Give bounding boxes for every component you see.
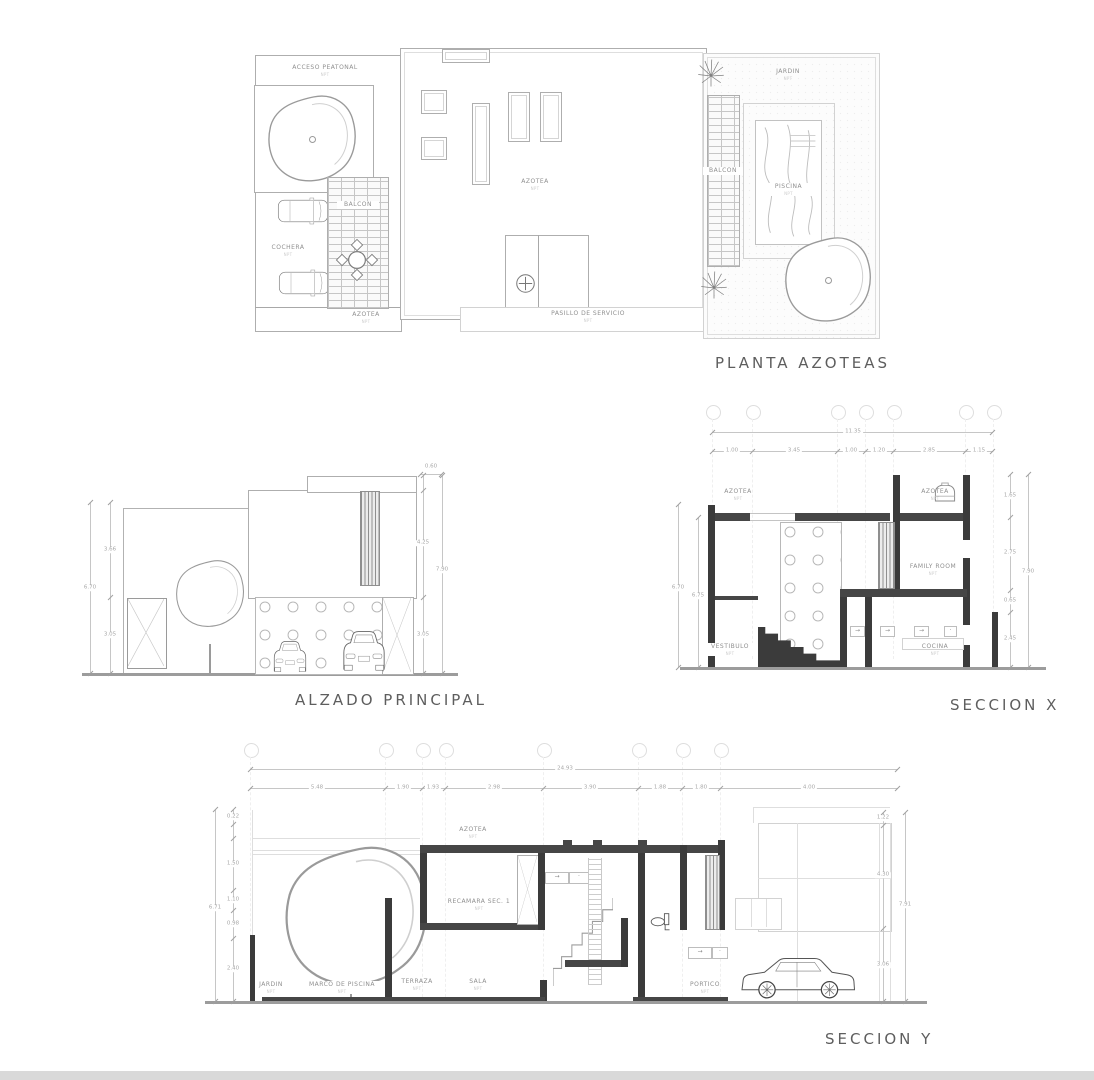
line bbox=[252, 810, 253, 935]
tree-elevation-icon bbox=[172, 540, 248, 648]
skylight bbox=[540, 92, 562, 142]
dining-set-icon bbox=[335, 238, 379, 282]
slab bbox=[795, 513, 890, 521]
dimension-line bbox=[423, 476, 424, 673]
dim-label: 1.93 bbox=[425, 785, 441, 791]
room-label-azotea: AZOTEA NPT bbox=[453, 826, 493, 839]
line bbox=[750, 520, 795, 521]
dim-label: 4.00 bbox=[801, 785, 817, 791]
dim-label: 1.88 bbox=[652, 785, 668, 791]
dim-label: 1.15 bbox=[971, 448, 987, 454]
line bbox=[538, 235, 539, 307]
cross-brace-icon bbox=[518, 856, 537, 922]
car-side-icon bbox=[733, 951, 861, 1001]
room-label-azotea: AZOTEA NPT bbox=[718, 488, 758, 501]
dim-label: 6.70 bbox=[82, 585, 98, 591]
dim-label: 2.45 bbox=[1002, 636, 1018, 642]
dim-label: 7.91 bbox=[897, 902, 913, 908]
skylight bbox=[421, 90, 447, 114]
room-label-text: PASILLO DE SERVICIO bbox=[551, 310, 625, 317]
palm-icon bbox=[699, 270, 729, 300]
shelf-chip: · bbox=[569, 872, 589, 884]
dim-label: 2.85 bbox=[921, 448, 937, 454]
room-label-text: VESTIBULO bbox=[711, 643, 749, 650]
room-label-text: JARDIN bbox=[259, 981, 283, 988]
roof-notch bbox=[442, 49, 490, 63]
grid-bubble-icon bbox=[244, 743, 259, 758]
slab bbox=[420, 845, 723, 853]
door-swing-chip: · bbox=[944, 626, 957, 637]
toilet-icon bbox=[648, 910, 672, 932]
level-note: NPT bbox=[683, 989, 727, 994]
seccion-y-drawing: 24.93 5.48 1.90 1.93 2.98 3.90 1.88 1.80… bbox=[205, 738, 945, 1058]
room-label-marco-piscina: MARCO DE PISCINA NPT bbox=[301, 981, 383, 994]
level-note: NPT bbox=[902, 571, 964, 576]
slab bbox=[715, 596, 758, 600]
dim-label: 6.70 bbox=[670, 585, 686, 591]
slab bbox=[563, 840, 572, 845]
dim-label: 3.05 bbox=[415, 632, 431, 638]
wall bbox=[420, 853, 427, 930]
level-note: NPT bbox=[283, 72, 367, 77]
room-label-piscina: PISCINA NPT bbox=[765, 183, 812, 196]
dim-label: 3.05 bbox=[102, 632, 118, 638]
room-label-azotea-cochera: AZOTEA NPT bbox=[341, 311, 391, 324]
slab bbox=[715, 513, 750, 521]
shelf-chip: · bbox=[712, 947, 728, 959]
dimension-line bbox=[442, 476, 443, 673]
window-gap bbox=[963, 625, 970, 645]
column-line bbox=[879, 823, 880, 1001]
dim-label: 6.75 bbox=[690, 593, 706, 599]
level-note: NPT bbox=[341, 319, 391, 324]
level-note: NPT bbox=[253, 989, 289, 994]
grid-bubble-icon bbox=[632, 743, 647, 758]
skylight bbox=[421, 137, 447, 160]
grid-bubble-icon bbox=[831, 405, 846, 420]
grid-bubble-icon bbox=[959, 405, 974, 420]
grid-bubble-icon bbox=[859, 405, 874, 420]
line bbox=[758, 878, 890, 879]
line bbox=[753, 807, 754, 823]
room-label-acceso: ACCESO PEATONAL NPT bbox=[283, 64, 367, 77]
line bbox=[750, 513, 795, 514]
shelf-chip: → bbox=[545, 872, 569, 884]
grid-bubble-icon bbox=[987, 405, 1002, 420]
level-note: NPT bbox=[302, 989, 382, 994]
dim-label: 0.60 bbox=[423, 464, 439, 470]
floor-slab bbox=[262, 997, 545, 1001]
wall bbox=[538, 853, 545, 930]
ground-line bbox=[205, 1001, 927, 1004]
wall bbox=[992, 612, 998, 669]
alzado-principal-drawing: 6.70 3.66 3.05 0.60 4.25 3.05 7.90 ALZAD… bbox=[80, 458, 480, 718]
dim-label: 1.00 bbox=[724, 448, 740, 454]
line bbox=[766, 899, 767, 927]
wall bbox=[621, 918, 628, 967]
slab bbox=[900, 513, 963, 521]
dim-label: 1.00 bbox=[843, 448, 859, 454]
level-note: NPT bbox=[453, 834, 493, 839]
line bbox=[543, 95, 559, 139]
level-note: NPT bbox=[460, 986, 496, 991]
room-label-recamara: RECAMARA SEC. 1 NPT bbox=[443, 898, 515, 911]
line bbox=[123, 508, 124, 673]
level-note: NPT bbox=[718, 496, 758, 501]
dim-label: 7.90 bbox=[434, 567, 450, 573]
drawing-title: SECCION Y bbox=[825, 1030, 933, 1048]
dim-label: 1.90 bbox=[395, 785, 411, 791]
room-label-text: PORTICO bbox=[690, 981, 720, 988]
room-label-text: ACCESO PEATONAL bbox=[292, 64, 357, 71]
room-label-text: COCHERA bbox=[272, 244, 305, 251]
dim-label: 4.25 bbox=[415, 540, 431, 546]
grid-drop-line bbox=[752, 419, 753, 659]
dim-label: 3.45 bbox=[786, 448, 802, 454]
door-swing-chip: → bbox=[880, 626, 895, 637]
car-front-icon bbox=[267, 638, 313, 673]
louver-panel bbox=[360, 491, 380, 586]
level-note: NPT bbox=[443, 906, 515, 911]
dim-label: 2.98 bbox=[486, 785, 502, 791]
tree-center-dot bbox=[309, 136, 316, 143]
wall bbox=[865, 597, 872, 667]
dim-label: 1.80 bbox=[693, 785, 709, 791]
room-label-family-room: FAMILY ROOM NPT bbox=[902, 563, 964, 576]
grid-bubble-icon bbox=[887, 405, 902, 420]
room-label-azotea: AZOTEA NPT bbox=[508, 178, 562, 191]
room-label-text: BALCON bbox=[344, 201, 372, 208]
slab bbox=[593, 840, 602, 845]
dimension-line bbox=[883, 813, 884, 1001]
line bbox=[753, 807, 890, 808]
tree-center-dot bbox=[825, 277, 832, 284]
stairs-icon bbox=[553, 898, 613, 986]
dim-label: 1.65 bbox=[1002, 493, 1018, 499]
floor-slab bbox=[633, 997, 728, 1001]
wall bbox=[680, 845, 687, 930]
dim-label: 0.98 bbox=[225, 921, 241, 927]
grid-bubble-icon bbox=[537, 743, 552, 758]
slab bbox=[638, 840, 647, 845]
dim-label: 2.40 bbox=[225, 966, 241, 972]
level-note: NPT bbox=[915, 496, 955, 501]
dim-label: 1.10 bbox=[225, 897, 241, 903]
room-label-text: AZOTEA bbox=[459, 826, 487, 833]
car-top-icon bbox=[277, 194, 329, 228]
level-note: NPT bbox=[533, 318, 643, 323]
room-label-portico: PORTICO NPT bbox=[683, 981, 727, 994]
room-label-text: COCINA bbox=[922, 643, 948, 650]
drawing-title: PLANTA AZOTEAS bbox=[715, 354, 890, 372]
room-label-text: SALA bbox=[469, 978, 487, 985]
grid-bubble-icon bbox=[416, 743, 431, 758]
cross-brace-icon bbox=[128, 599, 164, 666]
room-label-text: MARCO DE PISCINA bbox=[309, 981, 375, 988]
seccion-x-drawing: 11.35 1.00 3.45 1.00 1.20 2.85 1.15 → bbox=[668, 400, 1060, 720]
line bbox=[475, 106, 487, 182]
dim-label: 24.93 bbox=[555, 766, 575, 772]
dim-label: 3.06 bbox=[875, 962, 891, 968]
door-swing-chip: → bbox=[850, 626, 865, 637]
drawing-title: ALZADO PRINCIPAL bbox=[295, 691, 487, 709]
column-line bbox=[890, 823, 891, 1001]
room-label-sala: SALA NPT bbox=[460, 978, 496, 991]
door-swing-chip: → bbox=[914, 626, 929, 637]
line bbox=[445, 52, 487, 60]
grid-bubble-icon bbox=[706, 405, 721, 420]
dim-label: 5.48 bbox=[309, 785, 325, 791]
level-note: NPT bbox=[758, 76, 818, 81]
architectural-sheet: ACCESO PEATONAL NPT COCHERA NPT AZOTEA N… bbox=[0, 0, 1094, 1080]
line bbox=[751, 899, 752, 927]
room-label-text: JARDIN bbox=[776, 68, 800, 75]
dim-label: 1.20 bbox=[871, 448, 887, 454]
level-note: NPT bbox=[508, 186, 562, 191]
line bbox=[511, 95, 527, 139]
grid-bubble-icon bbox=[379, 743, 394, 758]
dim-label: 3.66 bbox=[102, 547, 118, 553]
grid-bubble-icon bbox=[714, 743, 729, 758]
room-label-text: BALCON bbox=[709, 167, 737, 174]
car-top-icon bbox=[278, 266, 330, 300]
room-label-text: AZOTEA bbox=[352, 311, 380, 318]
wall bbox=[840, 597, 847, 667]
level-note: NPT bbox=[915, 651, 955, 656]
upper-volume-outline bbox=[248, 490, 417, 599]
room-label-text: TERRAZA bbox=[401, 978, 432, 985]
slab bbox=[840, 589, 967, 597]
room-label-text: AZOTEA bbox=[521, 178, 549, 185]
dim-label: 7.90 bbox=[1020, 569, 1036, 575]
bottom-bar bbox=[0, 1071, 1094, 1080]
level-note: NPT bbox=[263, 252, 313, 257]
grid-bubble-icon bbox=[746, 405, 761, 420]
room-label-cocina: COCINA NPT bbox=[915, 643, 955, 656]
palm-icon bbox=[696, 58, 726, 88]
room-label-text: FAMILY ROOM bbox=[910, 563, 956, 570]
louver-panel bbox=[878, 522, 895, 589]
level-note: NPT bbox=[706, 651, 754, 656]
balcony-brick-area bbox=[707, 95, 740, 267]
line bbox=[424, 140, 444, 157]
skylight bbox=[472, 103, 490, 185]
dim-label: 2.75 bbox=[1002, 550, 1018, 556]
skylight bbox=[508, 92, 530, 142]
level-note: NPT bbox=[766, 191, 811, 196]
shelf-chip: → bbox=[688, 947, 712, 959]
louver-panel bbox=[705, 855, 720, 930]
room-label-cochera: COCHERA NPT bbox=[263, 244, 313, 257]
dimension-line bbox=[110, 503, 111, 673]
dim-label: 6.71 bbox=[207, 905, 223, 911]
grid-bubble-icon bbox=[439, 743, 454, 758]
room-label-jardin: JARDIN NPT bbox=[253, 981, 289, 994]
room-label-text: AZOTEA bbox=[921, 488, 949, 495]
planta-azoteas-drawing: ACCESO PEATONAL NPT COCHERA NPT AZOTEA N… bbox=[253, 46, 893, 381]
tree-trunk bbox=[209, 644, 211, 673]
room-label-balcon-izq: BALCON bbox=[337, 201, 379, 209]
drawing-title: SECCION X bbox=[950, 696, 1059, 714]
dim-label: 0.65 bbox=[1002, 598, 1018, 604]
window-gap bbox=[963, 540, 970, 558]
car-front-icon bbox=[336, 626, 392, 673]
dim-label: 3.90 bbox=[582, 785, 598, 791]
pool-water-icon bbox=[756, 121, 819, 242]
window-strip bbox=[735, 898, 782, 930]
dim-label: 11.35 bbox=[843, 429, 863, 435]
room-label-terraza: TERRAZA NPT bbox=[395, 978, 439, 991]
room-label-jardin: JARDIN NPT bbox=[758, 68, 818, 81]
slab bbox=[565, 960, 628, 967]
line bbox=[123, 508, 249, 509]
dim-label: 1.22 bbox=[875, 815, 891, 821]
stairs-icon bbox=[758, 627, 840, 667]
dim-label: 0.22 bbox=[225, 814, 241, 820]
room-label-azotea: AZOTEA NPT bbox=[915, 488, 955, 501]
dim-label: 1.50 bbox=[225, 861, 241, 867]
room-label-pasillo: PASILLO DE SERVICIO NPT bbox=[533, 310, 643, 323]
room-label-text: PISCINA bbox=[775, 183, 802, 190]
grid-bubble-icon bbox=[676, 743, 691, 758]
ground-line bbox=[680, 667, 1046, 670]
room-label-text: RECAMARA SEC. 1 bbox=[448, 898, 510, 905]
line bbox=[424, 93, 444, 111]
room-label-text: AZOTEA bbox=[724, 488, 752, 495]
room-label-vestibulo: VESTIBULO NPT bbox=[705, 643, 755, 656]
wall bbox=[638, 853, 645, 1001]
level-note: NPT bbox=[395, 986, 439, 991]
dim-label: 4.30 bbox=[875, 872, 891, 878]
drain-icon bbox=[513, 271, 538, 296]
room-label-balcon-der: BALCON bbox=[703, 167, 743, 175]
wall bbox=[385, 898, 392, 1001]
